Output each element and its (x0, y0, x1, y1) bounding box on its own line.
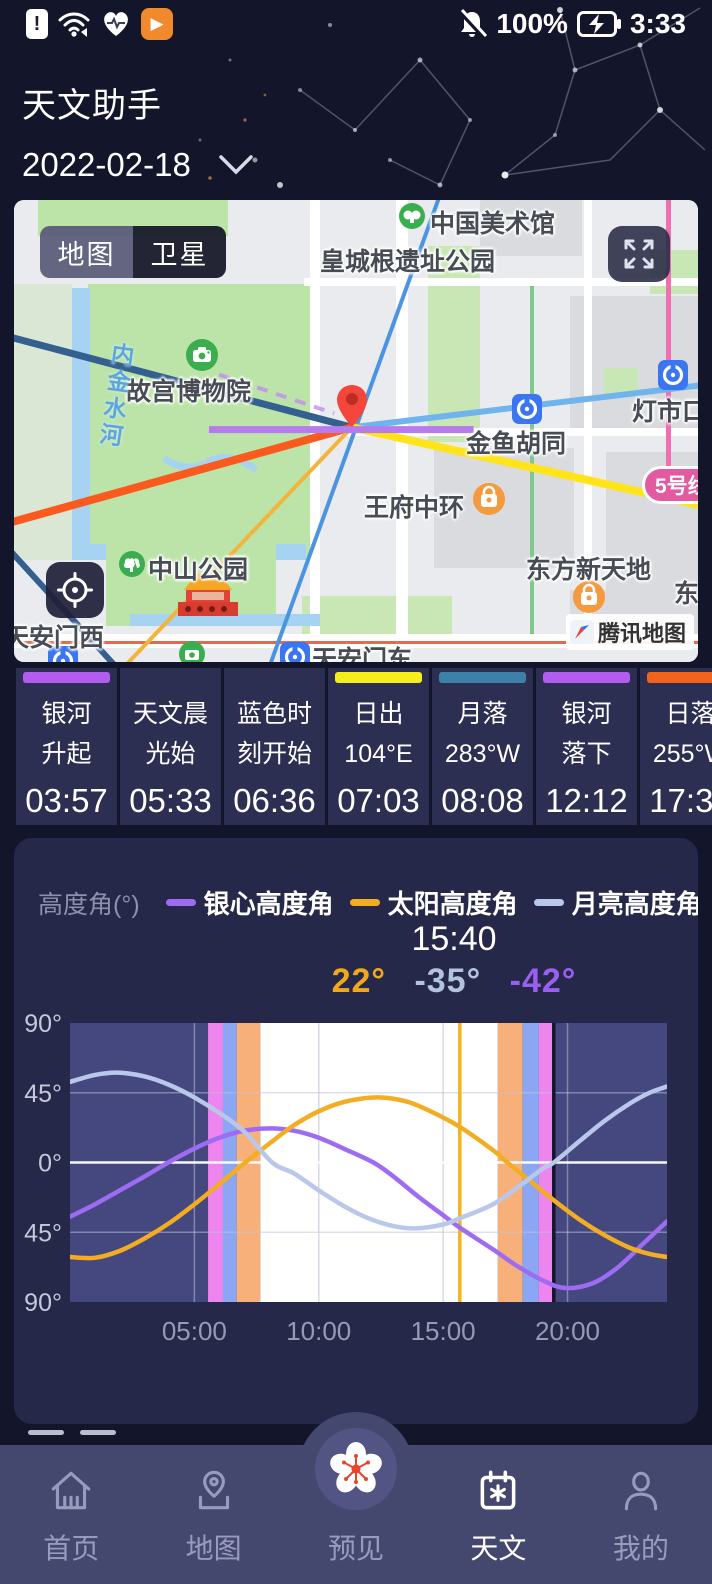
palace-camera-poi-icon (185, 338, 219, 372)
map-pin-icon (189, 1465, 239, 1517)
tencent-maps-logo-icon (570, 620, 594, 644)
subway-icon-dengshikou (658, 360, 688, 390)
bottom-navigation: 首页 地图 预见 天文 (0, 1445, 712, 1584)
map-label-dongdan: 东单 (674, 574, 698, 610)
status-bar: ! ▶ 100% 3:33 (0, 0, 712, 48)
event-label: 月落 (432, 694, 533, 734)
altitude-chart-card: 高度角(°) 银心高度角 太阳高度角 月亮高度角 15:40 22° -35° … (14, 838, 698, 1424)
event-label2: 104°E (328, 734, 429, 774)
event-time: 08:08 (432, 782, 533, 820)
event-label2: 升起 (16, 734, 117, 774)
map-label-art-museum: 中国美术馆 (430, 204, 555, 240)
astronomy-calendar-icon (473, 1465, 523, 1517)
legend-dash-galactic (166, 899, 196, 906)
map-panel[interactable]: 中国美术馆 皇城根遗址公园 故宫博物院 内金水河 灯市口 金鱼胡同 王府中环 中… (14, 200, 698, 662)
event-card-sunset[interactable]: 日落 255°W 17:35 (640, 668, 712, 825)
cursor-value-sun: 22° (332, 962, 386, 1000)
legend-label: 月亮高度角 (572, 884, 698, 921)
y-tick-label: 90° (24, 1010, 62, 1038)
event-label: 天文晨 (120, 694, 221, 734)
legend-galactic-center: 银心高度角 (166, 884, 334, 921)
nav-label-map: 地图 (186, 1527, 242, 1567)
map-label-jinyu-hutong: 金鱼胡同 (466, 424, 566, 460)
map-label-wangfu-central: 王府中环 (364, 488, 464, 524)
map-label-palace-museum: 故宫博物院 (126, 372, 251, 408)
event-time: 05:33 (120, 782, 221, 820)
y-tick-label: -90° (24, 1289, 62, 1317)
subway-icon-tiananmen-east (280, 642, 310, 662)
map-label-tiananmen-east: 天安门东 (312, 640, 412, 662)
map-attribution-text: 腾讯地图 (598, 616, 686, 648)
cursor-value-galactic: -42° (510, 962, 577, 1000)
event-card-astro-dawn[interactable]: 天文晨 光始 05:33 (120, 668, 221, 825)
event-color-bar (23, 672, 110, 683)
date-value[interactable]: 2022-02-18 (22, 146, 191, 184)
event-label2: 落下 (536, 734, 637, 774)
video-app-icon: ▶ (141, 8, 173, 40)
cursor-value-moon: -35° (414, 962, 481, 1000)
event-label2: 刻开始 (224, 734, 325, 774)
y-tick-label: 45° (24, 1080, 62, 1108)
legend-sun: 太阳高度角 (350, 884, 518, 921)
event-label: 日落 (640, 694, 712, 734)
home-icon (46, 1465, 96, 1517)
event-label: 日出 (328, 694, 429, 734)
health-heart-icon (100, 9, 132, 39)
bell-muted-icon (457, 8, 487, 40)
event-label2: 光始 (120, 734, 221, 774)
event-card-galaxy-set[interactable]: 银河 落下 12:12 (536, 668, 637, 825)
x-tick-label: 20:00 (535, 1316, 600, 1346)
legend-moon: 月亮高度角 (534, 884, 698, 921)
bottom-camera-poi-icon (178, 640, 206, 662)
subway-icon-jinyu (512, 394, 542, 424)
event-cards-row[interactable]: 银河 升起 03:57 天文晨 光始 05:33 蓝色时 刻开始 06:36 日… (16, 668, 712, 825)
museum-poi-icon (398, 202, 426, 230)
event-card-moonset[interactable]: 月落 283°W 08:08 (432, 668, 533, 825)
legend-label: 太阳高度角 (388, 884, 518, 921)
nav-label-profile: 我的 (613, 1527, 669, 1567)
locate-button[interactable] (46, 562, 104, 618)
drag-dash-1 (28, 1430, 64, 1435)
battery-charging-icon (577, 11, 621, 37)
event-color-bar (127, 672, 214, 683)
altitude-chart[interactable]: 05:0010:0015:0020:0090°45°0°-45°-90° (24, 1008, 688, 1368)
zhongshan-park-poi-icon (118, 550, 146, 578)
x-tick-label: 10:00 (286, 1316, 351, 1346)
event-label: 蓝色时 (224, 694, 325, 734)
event-card-blue-hour[interactable]: 蓝色时 刻开始 06:36 (224, 668, 325, 825)
metro-line5-badge: 5号线 (642, 466, 698, 504)
nav-item-map[interactable]: 地图 (142, 1445, 284, 1584)
y-tick-label: 0° (38, 1150, 62, 1178)
y-tick-label: -45° (24, 1219, 62, 1247)
legend-label: 银心高度角 (204, 884, 334, 921)
event-label2: 255°W (640, 734, 712, 774)
sim-alert-icon: ! (26, 9, 48, 39)
x-tick-label: 05:00 (162, 1316, 227, 1346)
map-label-oriental-plaza: 东方新天地 (526, 550, 651, 586)
map-attribution: 腾讯地图 (566, 614, 694, 650)
map-label-zhongshan-park: 中山公园 (148, 550, 248, 586)
event-card-sunrise[interactable]: 日出 104°E 07:03 (328, 668, 429, 825)
satellite-mode-button[interactable]: 卫星 (133, 226, 226, 278)
crosshair-icon (57, 572, 93, 608)
map-mode-button[interactable]: 地图 (40, 226, 133, 278)
event-time: 17:35 (640, 782, 712, 820)
nav-label-foresee: 预见 (328, 1527, 384, 1567)
fullscreen-button[interactable] (608, 226, 670, 282)
map-layer-toggle: 地图 卫星 (40, 226, 226, 278)
ray-redorange-west (14, 427, 352, 523)
foresee-flower-button[interactable] (315, 1428, 397, 1510)
plum-blossom-icon (324, 1437, 388, 1501)
cursor-time: 15:40 (214, 920, 694, 959)
date-selector[interactable]: 2022-02-18 (22, 146, 255, 184)
nav-label-home: 首页 (43, 1527, 99, 1567)
expand-icon (622, 237, 656, 271)
nav-label-astronomy: 天文 (470, 1527, 526, 1567)
battery-percent: 100% (496, 8, 568, 40)
chart-legend: 高度角(°) 银心高度角 太阳高度角 月亮高度角 (38, 884, 690, 921)
wifi-icon (57, 8, 91, 40)
chevron-down-icon (217, 153, 255, 177)
event-label: 银河 (536, 694, 637, 734)
event-time: 12:12 (536, 782, 637, 820)
event-color-bar (335, 672, 422, 683)
status-time: 3:33 (630, 8, 686, 40)
event-label2: 283°W (432, 734, 533, 774)
x-tick-label: 15:00 (411, 1316, 476, 1346)
event-time: 03:57 (16, 782, 117, 820)
mall-poi-icon-wangfu (472, 482, 506, 516)
map-label-huangchenggen: 皇城根遗址公园 (320, 242, 495, 278)
y-axis-title: 高度角(°) (38, 885, 140, 921)
nav-item-astronomy[interactable]: 天文 (427, 1445, 569, 1584)
location-pin (334, 383, 370, 429)
nav-item-home[interactable]: 首页 (0, 1445, 142, 1584)
event-card-galaxy-rise[interactable]: 银河 升起 03:57 (16, 668, 117, 825)
page-title: 天文助手 (22, 78, 162, 127)
legend-dash-sun (350, 899, 380, 906)
person-icon (616, 1465, 666, 1517)
cursor-values: 22° -35° -42° (214, 962, 694, 1001)
map-label-tiananmen-west: 天安门西 (14, 618, 104, 654)
legend-dash-moon (534, 899, 564, 906)
nav-item-profile[interactable]: 我的 (570, 1445, 712, 1584)
event-label: 银河 (16, 694, 117, 734)
event-time: 06:36 (224, 782, 325, 820)
event-color-bar (543, 672, 630, 683)
map-label-dengshikou: 灯市口 (632, 392, 698, 428)
event-time: 07:03 (328, 782, 429, 820)
event-color-bar (647, 672, 712, 683)
event-color-bar (231, 672, 318, 683)
event-color-bar (439, 672, 526, 683)
drag-dash-2 (80, 1430, 116, 1435)
